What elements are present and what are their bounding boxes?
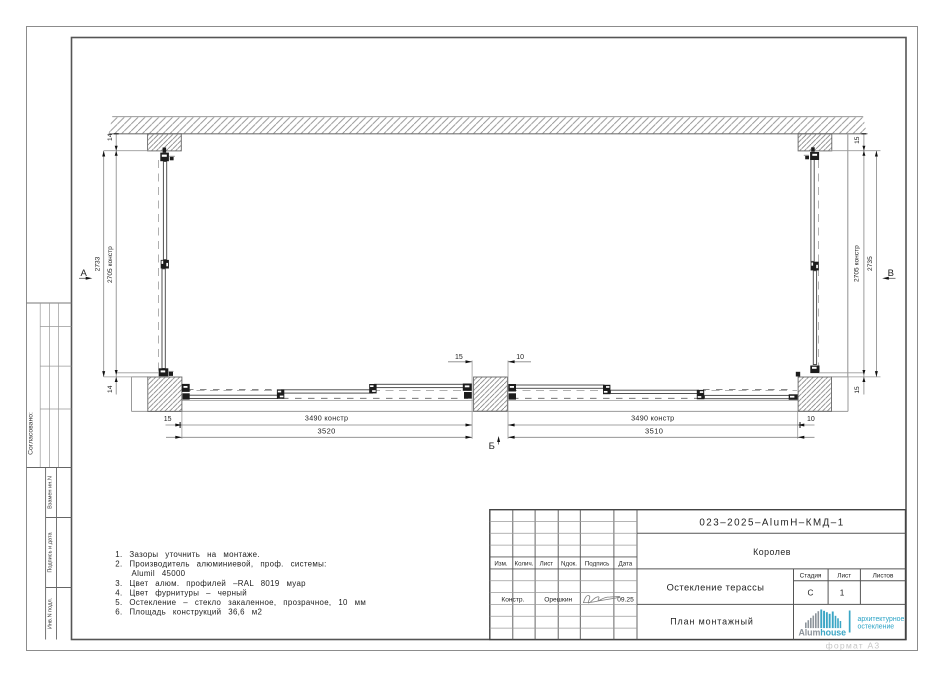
- svg-text:Alumhouse: Alumhouse: [799, 628, 847, 638]
- svg-text:3490 констр: 3490 констр: [305, 414, 348, 423]
- svg-text:2. Производитель алюминиевой,: 2. Производитель алюминиевой, проф. сист…: [115, 560, 326, 569]
- svg-text:2733: 2733: [95, 256, 102, 271]
- svg-text:Колич.: Колич.: [515, 561, 534, 568]
- svg-text:остекление: остекление: [858, 623, 895, 630]
- svg-text:Nдок.: Nдок.: [561, 561, 577, 568]
- svg-text:Согласовано:: Согласовано:: [28, 412, 35, 455]
- svg-text:Подпись и дата: Подпись и дата: [48, 531, 54, 572]
- svg-text:15: 15: [854, 386, 861, 394]
- svg-text:023–2025–AlumH–КМД–1: 023–2025–AlumH–КМД–1: [699, 517, 844, 528]
- svg-text:2705 констр: 2705 констр: [107, 246, 114, 283]
- svg-text:Остекление терассы: Остекление терассы: [667, 582, 765, 592]
- svg-text:3520: 3520: [317, 426, 335, 435]
- svg-text:Подпись: Подпись: [585, 561, 610, 568]
- svg-text:С: С: [808, 589, 814, 598]
- svg-text:Констр.: Констр.: [501, 596, 524, 603]
- svg-text:архитектурное: архитектурное: [858, 616, 905, 623]
- svg-text:Стадия: Стадия: [800, 573, 822, 580]
- svg-text:Орешкин: Орешкин: [544, 596, 572, 603]
- svg-text:Alumil 45000: Alumil 45000: [132, 569, 186, 578]
- svg-text:3510: 3510: [645, 426, 663, 435]
- svg-text:Королев: Королев: [753, 547, 791, 557]
- svg-text:15: 15: [854, 136, 861, 144]
- svg-text:Дата: Дата: [619, 561, 633, 568]
- svg-text:Инв.N подл.: Инв.N подл.: [48, 597, 54, 629]
- svg-text:10: 10: [516, 354, 524, 361]
- svg-text:4. Цвет фурнитуры – черный: 4. Цвет фурнитуры – черный: [115, 588, 247, 597]
- svg-text:Взамен ин.N: Взамен ин.N: [48, 476, 54, 509]
- svg-text:14: 14: [107, 385, 114, 393]
- svg-text:Изм.: Изм.: [494, 561, 508, 568]
- svg-text:Б: Б: [489, 441, 495, 452]
- svg-text:10: 10: [807, 416, 815, 423]
- svg-text:2705 констр: 2705 констр: [853, 245, 860, 282]
- svg-text:15: 15: [164, 416, 172, 423]
- svg-text:Листов: Листов: [873, 573, 894, 580]
- svg-text:2735: 2735: [867, 256, 874, 271]
- svg-text:5. Остекление – стекло зака: 5. Остекление – стекло закаленное, прозр…: [115, 598, 366, 607]
- svg-text:формат А3: формат А3: [826, 641, 881, 651]
- svg-text:3. Цвет алюм. профилей –RAL: 3. Цвет алюм. профилей –RAL 8019 муар: [115, 579, 306, 588]
- svg-text:Лист: Лист: [837, 573, 851, 580]
- svg-text:1: 1: [840, 589, 845, 598]
- svg-text:09.25: 09.25: [617, 597, 634, 604]
- svg-text:План монтажный: План монтажный: [670, 617, 753, 627]
- svg-text:6. Площадь конструкций 36,6: 6. Площадь конструкций 36,6 м2: [115, 608, 262, 617]
- svg-text:3490 констр: 3490 констр: [631, 414, 674, 423]
- svg-text:1. Зазоры уточнить на монта: 1. Зазоры уточнить на монтаже.: [115, 550, 260, 559]
- svg-text:15: 15: [455, 354, 463, 361]
- svg-text:14: 14: [107, 133, 114, 141]
- svg-text:Лист: Лист: [540, 561, 554, 568]
